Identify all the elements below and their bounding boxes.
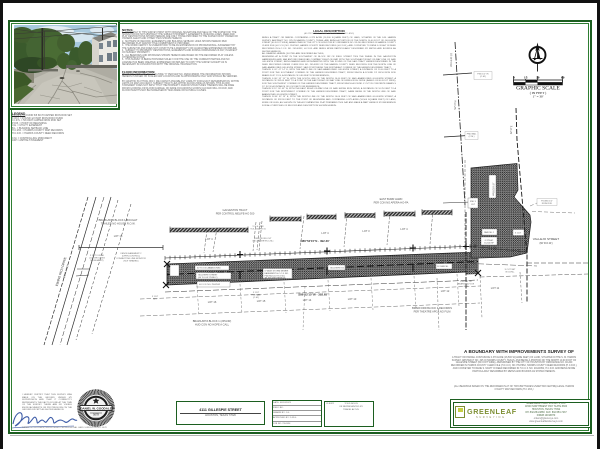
svg-text:LOT 4: LOT 4 xyxy=(321,231,329,235)
svg-text:IN CONC.: IN CONC. xyxy=(505,272,515,274)
svg-text:VALLEJO STREET: VALLEJO STREET xyxy=(533,237,560,241)
svg-text:(C.M.): (C.M.) xyxy=(480,76,486,78)
svg-text:PER THEATRE APGA NO FILM: PER THEATRE APGA NO FILM xyxy=(414,310,451,314)
svg-text:VALLEJO ST: VALLEJO ST xyxy=(450,52,454,67)
svg-text:GALVESTON TRACT: GALVESTON TRACT xyxy=(223,208,248,212)
svg-text:LOT 4: LOT 4 xyxy=(205,237,213,241)
svg-text:PER CON NO APERA-HO-PA: PER CON NO APERA-HO-PA xyxy=(374,201,409,205)
svg-text:(60' R.O.W.): (60' R.O.W.) xyxy=(539,242,552,245)
svg-text:(60' R.O.W. PUBLIC): (60' R.O.W. PUBLIC) xyxy=(198,277,218,279)
svg-text:BRAZIL/RITA BLOCK 1 BOUGHT: BRAZIL/RITA BLOCK 1 BOUGHT xyxy=(99,218,138,222)
svg-text:N86°52'15"E - 392.30': N86°52'15"E - 392.30' xyxy=(301,239,330,243)
svg-text:10' PARCEL: 10' PARCEL xyxy=(437,265,449,268)
svg-text:HUD CON NO HOPE A CALL: HUD CON NO HOPE A CALL xyxy=(195,323,230,327)
svg-text:LOT 14: LOT 14 xyxy=(303,298,312,302)
svg-text:S86°52'15"W - 392.65': S86°52'15"W - 392.65' xyxy=(298,293,328,297)
svg-text:IN CONCRETE (C.M.): IN CONCRETE (C.M.) xyxy=(253,241,274,243)
svg-text:(C.M.): (C.M.) xyxy=(253,297,259,299)
svg-text:X CUT: X CUT xyxy=(515,233,522,235)
svg-text:N2°47'W: N2°47'W xyxy=(454,100,457,110)
svg-text:IRON ROD: IRON ROD xyxy=(542,203,553,205)
svg-text:(C.M.): (C.M.) xyxy=(469,136,475,138)
svg-text:VALLEJO ST: VALLEJO ST xyxy=(492,182,495,196)
svg-text:LOT 15: LOT 15 xyxy=(257,299,266,303)
svg-text:LOT 11: LOT 11 xyxy=(491,286,500,290)
svg-text:VOL. 254 PG 31: VOL. 254 PG 31 xyxy=(250,229,266,231)
svg-text:EAST BURR HARD: EAST BURR HARD xyxy=(380,197,403,201)
svg-text:16,500 SF: 16,500 SF xyxy=(484,243,494,245)
svg-text:(NOT SHARED): (NOT SHARED) xyxy=(124,260,139,263)
svg-text:LOT 12: LOT 12 xyxy=(441,289,450,293)
svg-text:PARCEL 2: PARCEL 2 xyxy=(484,231,495,234)
svg-text:BRAZIL/RITA BLOCK 1 (2PGOR): BRAZIL/RITA BLOCK 1 (2PGOR) xyxy=(193,319,232,323)
svg-text:FND X: FND X xyxy=(470,201,477,203)
svg-text:LOT 4: LOT 4 xyxy=(400,227,408,231)
svg-text:DANIEL W. GOODALE: DANIEL W. GOODALE xyxy=(80,406,111,410)
svg-text:H.C.C.F. NO. P647662: H.C.C.F. NO. P647662 xyxy=(199,284,221,286)
svg-text:LOT 13: LOT 13 xyxy=(348,297,357,301)
svg-text:60' R.O.W. ABANDONED: 60' R.O.W. ABANDONED xyxy=(197,267,221,270)
svg-text:LOT 18: LOT 18 xyxy=(114,234,123,238)
svg-text:GILLESPIE ST.: GILLESPIE ST. xyxy=(330,268,345,270)
svg-text:PER CONTROL MELIFE-HO 300: PER CONTROL MELIFE-HO 300 xyxy=(216,212,255,216)
svg-text:S2°47'E: S2°47'E xyxy=(510,125,513,134)
svg-text:SET: SET xyxy=(153,299,158,301)
svg-text:TRAILER NO HOUSE R.O.W.: TRAILER NO HOUSE R.O.W. xyxy=(101,222,136,226)
svg-text:BRADFORD BLOCK 4 RECORDS: BRADFORD BLOCK 4 RECORDS xyxy=(412,306,452,310)
svg-text:MONUMENT): MONUMENT) xyxy=(91,260,104,262)
svg-text:LOT 16: LOT 16 xyxy=(208,300,217,304)
svg-text:AS SHOWN HEREON: AS SHOWN HEREON xyxy=(265,277,286,280)
svg-text:LOT 3: LOT 3 xyxy=(362,229,370,233)
